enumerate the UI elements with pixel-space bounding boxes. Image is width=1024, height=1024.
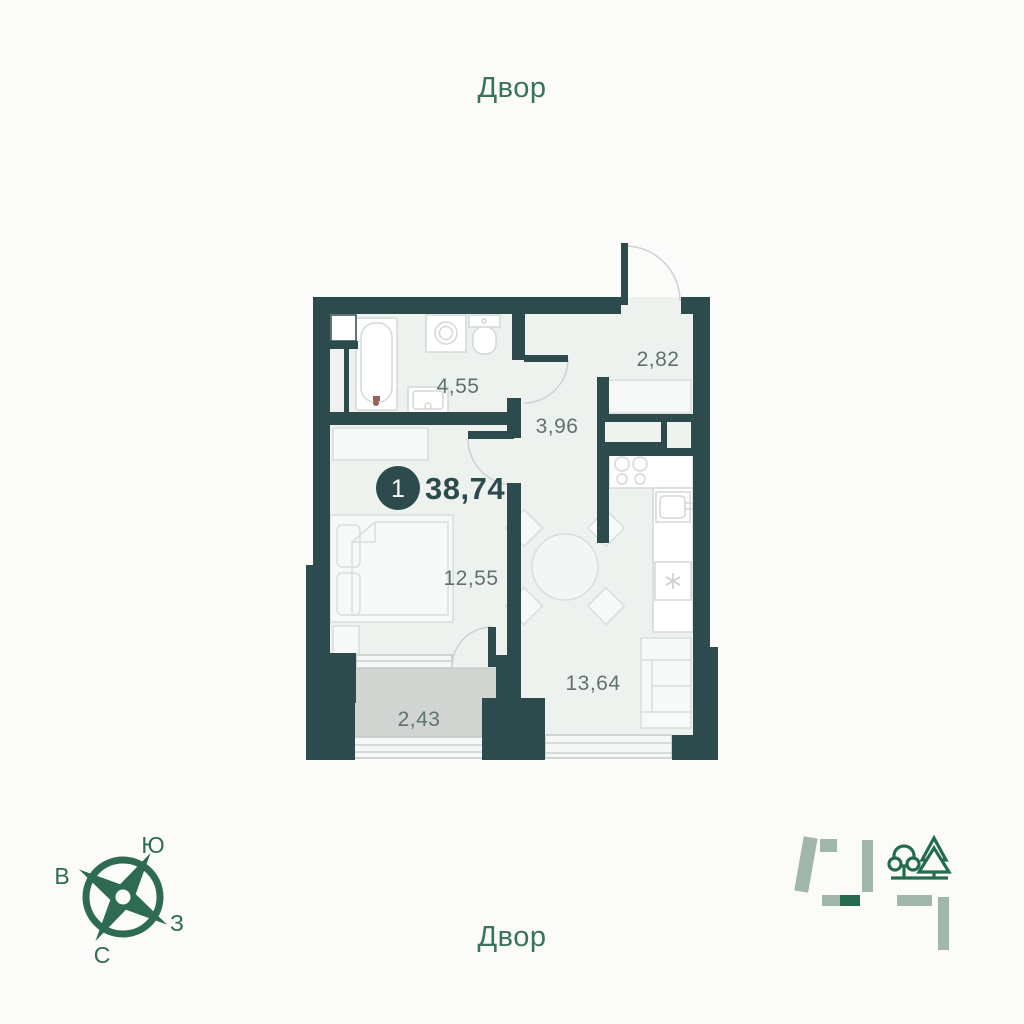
balcony-door-leaf	[488, 627, 496, 667]
total-area-group: 1 38,74	[376, 466, 505, 510]
balcony-area-label: 2,43	[398, 708, 441, 731]
compass-south-label: Ю	[141, 832, 164, 858]
entry-wardrobe-icon	[608, 380, 691, 413]
compass-east-label: В	[54, 863, 69, 889]
entry-door-arc	[625, 246, 680, 301]
courtyard-label-top: Двор	[0, 72, 1024, 105]
building-bar	[862, 840, 873, 892]
entry-storage	[608, 380, 691, 413]
courtyard-label-bottom: Двор	[0, 921, 1024, 954]
bathroom-door-leaf	[524, 355, 568, 362]
sofa-icon	[641, 638, 691, 728]
toilet-icon	[469, 315, 500, 327]
living-room-window	[545, 735, 672, 758]
floor-plan-page: Двор	[0, 0, 1024, 1024]
total-area-label: 38,74	[425, 471, 505, 506]
wardrobe-icon	[333, 428, 428, 460]
nightstand-icon	[333, 626, 359, 654]
entry-door-leaf	[621, 243, 628, 305]
building-bar	[822, 895, 840, 906]
building-bar	[820, 839, 837, 852]
park-trees-icon	[889, 838, 949, 878]
round-table-icon	[532, 534, 598, 600]
washing-machine-icon	[426, 315, 466, 352]
building-bar	[794, 836, 817, 893]
building-bar	[897, 895, 932, 906]
hall-area-label: 3,96	[536, 415, 579, 438]
entry-area-label: 2,82	[637, 348, 680, 371]
bedroom-area-label: 12,55	[443, 567, 498, 590]
closet-shelf	[605, 422, 661, 442]
balcony-window	[352, 737, 484, 758]
pillow-icon	[337, 573, 360, 615]
closet-shelf	[667, 422, 691, 448]
kitchen-living-area-label: 13,64	[565, 672, 620, 695]
floor-plan-svg: 4,55 2,82 3,96 12,55 13,64 2,43 1 38,74 …	[0, 0, 1024, 1024]
pillow-icon	[337, 525, 360, 567]
shaft-icon	[331, 315, 356, 341]
current-building-marker	[840, 895, 860, 906]
rooms-count-label: 1	[391, 475, 405, 503]
bathroom-area-label: 4,55	[437, 375, 480, 398]
